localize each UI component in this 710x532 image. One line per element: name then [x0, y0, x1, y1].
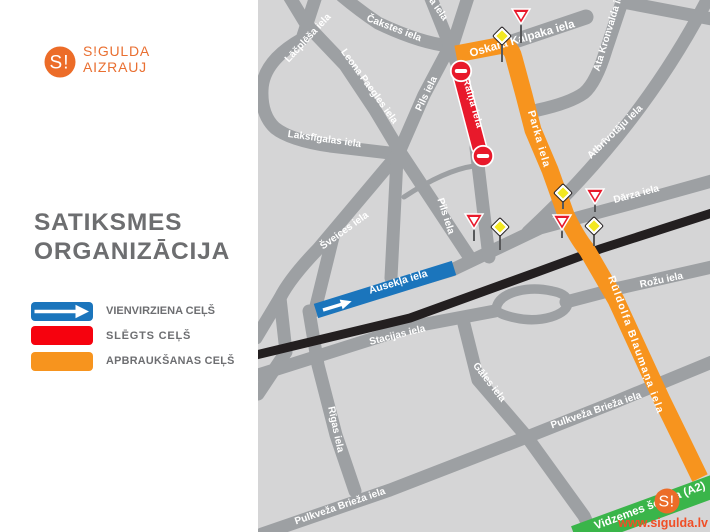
svg-text:S!: S!	[658, 494, 674, 511]
svg-text:www.sigulda.lv: www.sigulda.lv	[617, 516, 708, 530]
svg-text:S!: S!	[50, 53, 70, 74]
